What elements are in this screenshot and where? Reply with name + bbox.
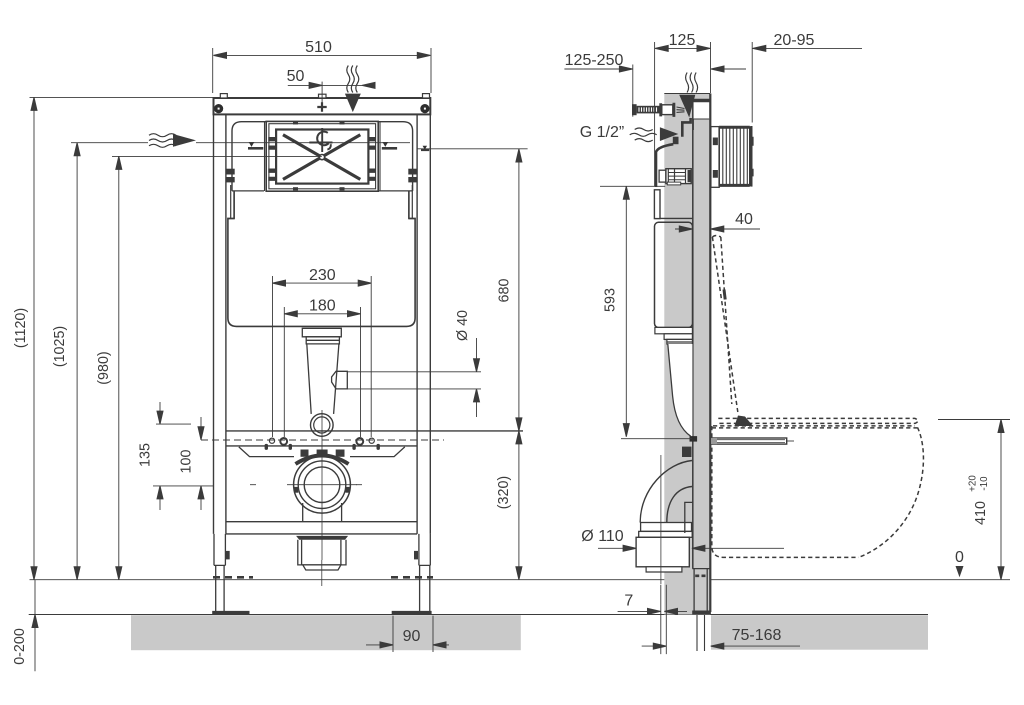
svg-text:230: 230 <box>309 267 336 284</box>
svg-text:593: 593 <box>603 288 619 312</box>
svg-text:75-168: 75-168 <box>732 627 782 644</box>
svg-text:G 1/2”: G 1/2” <box>580 124 624 141</box>
svg-text:680: 680 <box>497 279 513 303</box>
svg-text:0-200: 0-200 <box>12 628 28 665</box>
svg-text:135: 135 <box>138 443 154 467</box>
svg-text:(1025): (1025) <box>52 326 68 367</box>
svg-text:-10: -10 <box>979 476 990 491</box>
svg-text:Ø 40: Ø 40 <box>455 310 471 341</box>
svg-text:(1120): (1120) <box>13 308 29 348</box>
svg-text:(980): (980) <box>96 351 112 384</box>
svg-text:Ø 110: Ø 110 <box>581 528 624 545</box>
svg-text:(320): (320) <box>496 476 512 509</box>
svg-text:510: 510 <box>305 39 332 56</box>
svg-text:20-95: 20-95 <box>774 32 815 49</box>
svg-text:90: 90 <box>403 628 421 645</box>
svg-text:125-250: 125-250 <box>565 52 624 69</box>
svg-text:50: 50 <box>287 68 305 85</box>
svg-text:410: 410 <box>973 501 989 525</box>
svg-text:0: 0 <box>955 549 964 566</box>
svg-text:100: 100 <box>179 450 195 474</box>
svg-text:7: 7 <box>624 593 633 610</box>
svg-text:+20: +20 <box>968 475 979 492</box>
svg-text:125: 125 <box>669 32 696 49</box>
svg-text:180: 180 <box>309 298 336 315</box>
svg-text:40: 40 <box>735 211 753 228</box>
